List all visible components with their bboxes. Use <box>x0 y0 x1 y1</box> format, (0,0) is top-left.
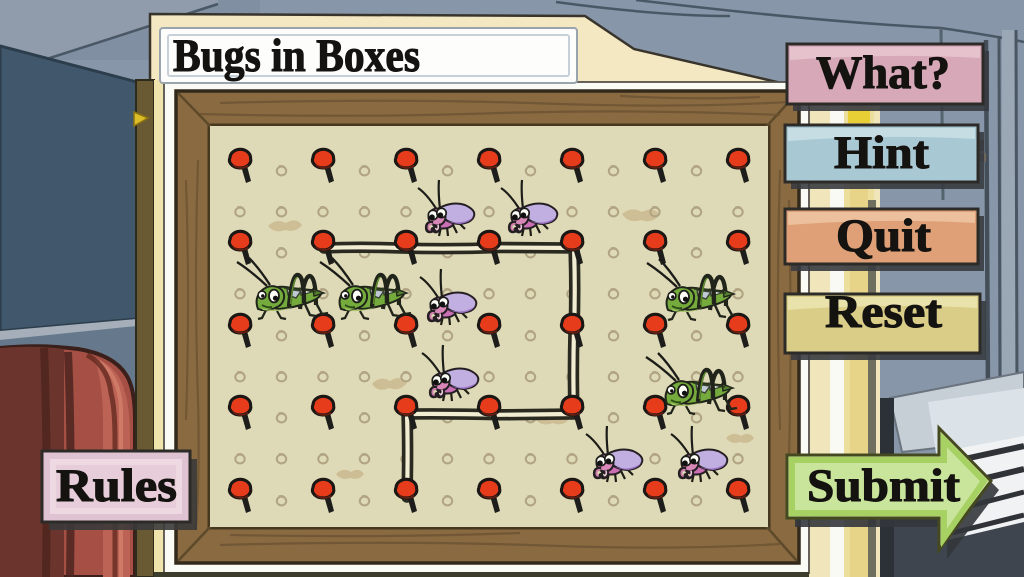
svg-text:Submit: Submit <box>807 460 960 512</box>
svg-text:Hint: Hint <box>834 127 929 179</box>
svg-text:Bugs in Boxes: Bugs in Boxes <box>173 30 420 82</box>
svg-text:What?: What? <box>816 47 950 99</box>
svg-text:Reset: Reset <box>825 286 942 338</box>
svg-text:Quit: Quit <box>836 210 931 262</box>
svg-text:Rules: Rules <box>56 460 177 512</box>
